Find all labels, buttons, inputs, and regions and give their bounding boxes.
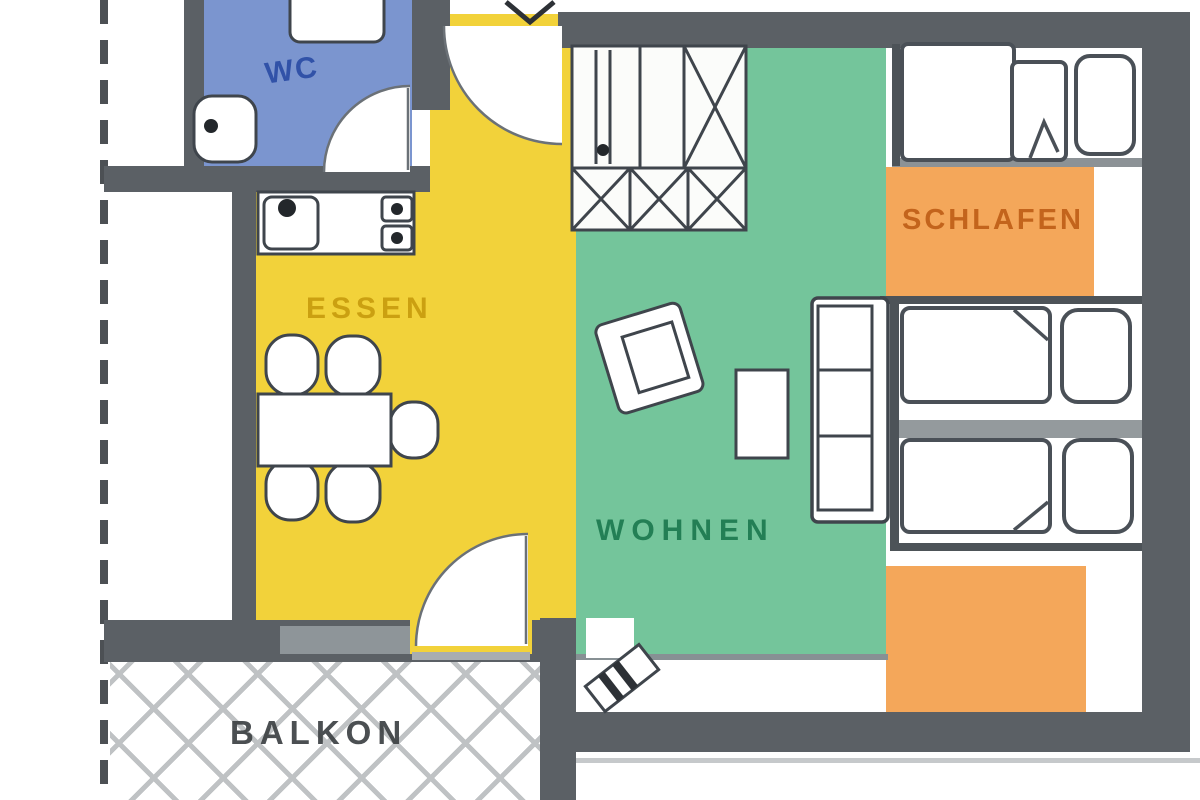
living-label: WOHNEN [596, 514, 775, 548]
sleeping-label: SCHLAFEN [902, 204, 1084, 237]
door-swing-icon-balcony [416, 534, 528, 646]
balcony-label: BALKON [230, 714, 407, 752]
pillow-icon [1076, 56, 1134, 154]
wardrobe-icon [572, 46, 746, 230]
door-swing-icon-wc [324, 86, 410, 172]
pillow-icon [1064, 440, 1132, 532]
window-sill [586, 618, 634, 658]
side-table-icon [736, 370, 788, 458]
bed-icon-double [902, 44, 1134, 160]
sofa-icon [812, 298, 888, 522]
armchair-icon [594, 301, 705, 415]
toilet-icon [194, 96, 256, 162]
furniture-layer [0, 0, 1200, 800]
floor-plan: WC ESSEN WOHNEN SCHLAFEN BALKON [0, 0, 1200, 800]
door-swing-icon-entry [444, 2, 562, 144]
bed-icon-single-1 [902, 308, 1130, 402]
dining-label: ESSEN [306, 292, 433, 326]
dining-table-icon [258, 394, 391, 466]
washbasin-icon [290, 0, 384, 42]
pillow-icon [1062, 310, 1130, 402]
kitchen-sink-icon [264, 197, 318, 249]
bed-icon-single-2 [902, 440, 1132, 532]
